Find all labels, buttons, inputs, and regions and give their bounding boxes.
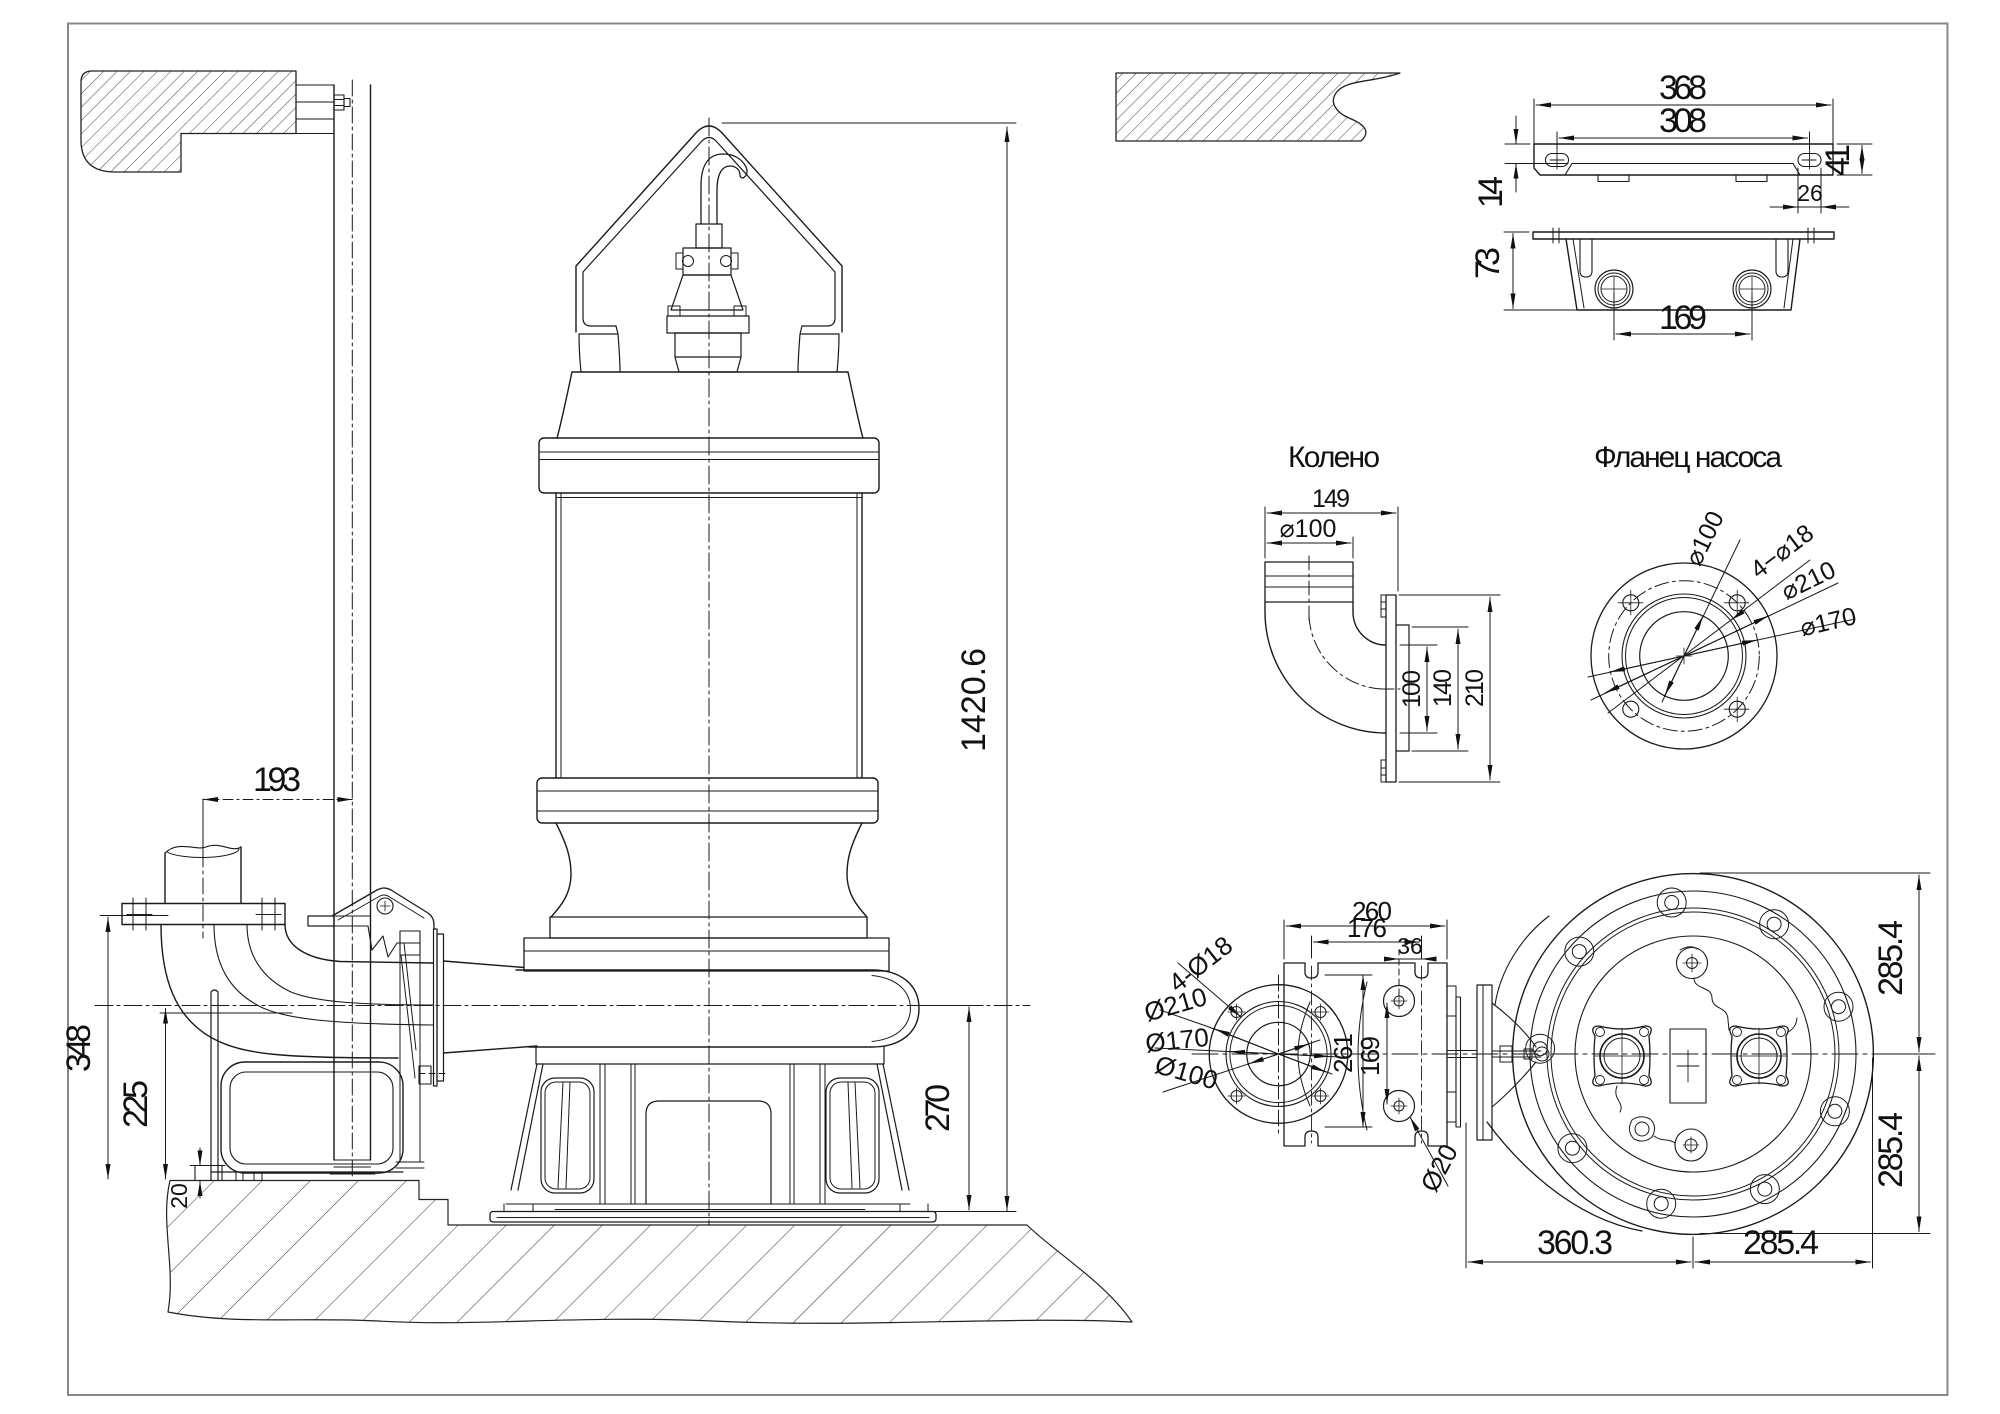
svg-text:Колено: Колено <box>1288 441 1380 474</box>
svg-text:261: 261 <box>1328 1033 1358 1073</box>
svg-text:26: 26 <box>1797 180 1823 206</box>
svg-text:210: 210 <box>1461 669 1489 707</box>
svg-text:285.4: 285.4 <box>1743 1224 1819 1262</box>
svg-text:100: 100 <box>1398 670 1426 708</box>
svg-text:36: 36 <box>1397 933 1423 959</box>
svg-text:⌀100: ⌀100 <box>1280 515 1337 543</box>
svg-text:348: 348 <box>60 1024 98 1072</box>
svg-text:225: 225 <box>117 1080 155 1128</box>
svg-text:308: 308 <box>1659 102 1707 140</box>
svg-text:169: 169 <box>1659 299 1707 337</box>
svg-text:149: 149 <box>1312 485 1350 513</box>
svg-text:14: 14 <box>1472 176 1510 208</box>
svg-text:20: 20 <box>166 1183 192 1209</box>
svg-text:176: 176 <box>1347 913 1387 943</box>
svg-text:285.4: 285.4 <box>1872 1112 1910 1188</box>
svg-text:360.3: 360.3 <box>1537 1224 1613 1262</box>
svg-text:285.4: 285.4 <box>1872 920 1910 996</box>
svg-text:Фланец насоса: Фланец насоса <box>1594 441 1782 474</box>
svg-text:41: 41 <box>1819 144 1857 176</box>
svg-text:1420.6: 1420.6 <box>955 648 993 752</box>
svg-text:169: 169 <box>1355 1036 1385 1076</box>
svg-text:140: 140 <box>1429 669 1457 707</box>
svg-text:73: 73 <box>1469 247 1507 279</box>
svg-text:193: 193 <box>253 761 301 799</box>
svg-text:270: 270 <box>919 1084 957 1132</box>
